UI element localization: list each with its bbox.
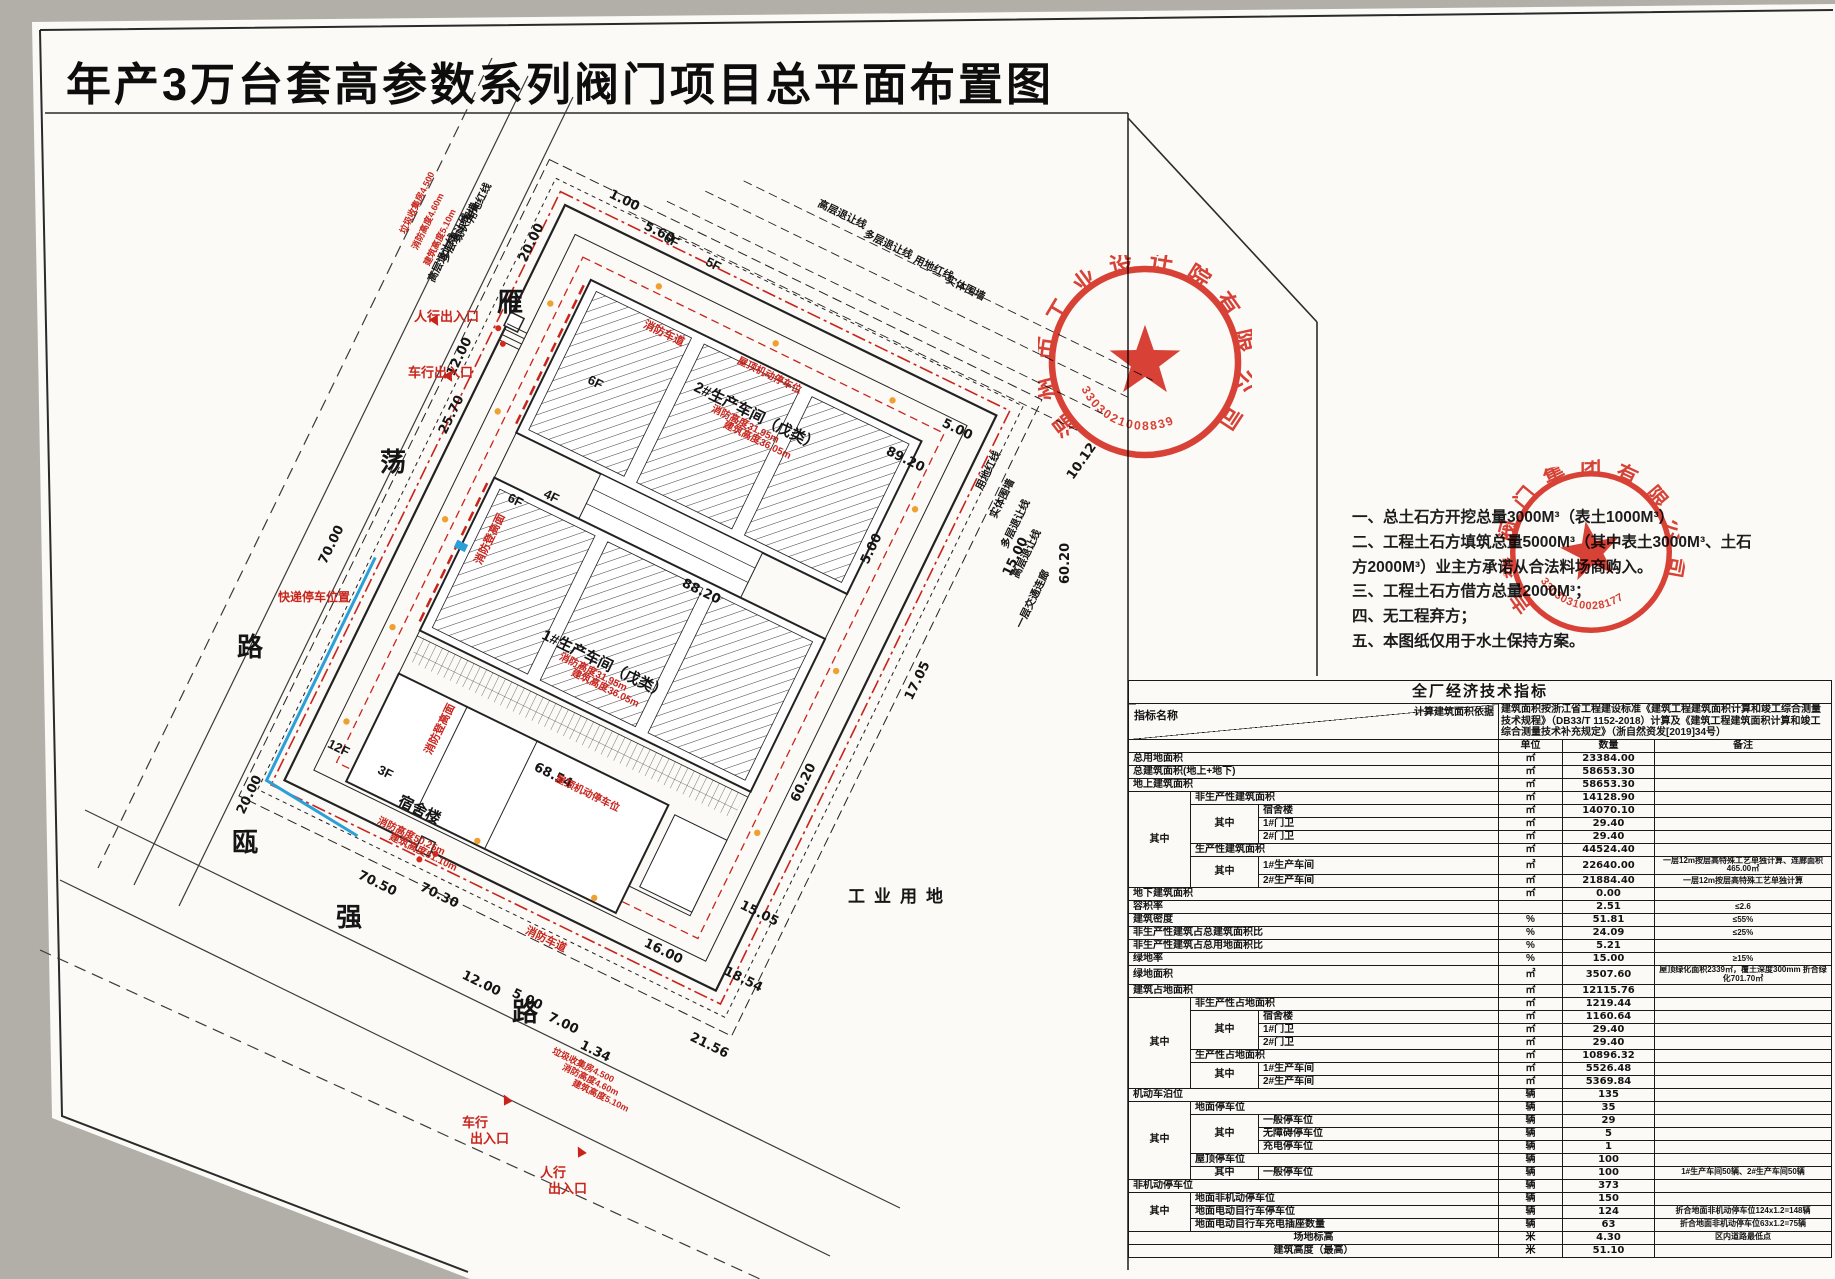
economic-indicators-table: 全厂经济技术指标 计算建筑面积依据 指标名称 建筑面积按浙江省工程建设标准《建筑…	[1128, 680, 1832, 1258]
table-cell	[1655, 1101, 1832, 1114]
table-cell	[1655, 984, 1832, 997]
table-cell: 地面停车位	[1191, 1101, 1499, 1114]
table-row: 其中非生产性建筑面积㎡14128.90	[1129, 791, 1832, 804]
stamp-number: 3303021008839	[1079, 384, 1177, 433]
table-cell: 其中	[1191, 856, 1259, 888]
table-row: 屋顶停车位辆100	[1129, 1153, 1832, 1166]
table-cell: 辆	[1499, 1179, 1563, 1192]
table-cell: 非机动停车位	[1129, 1179, 1499, 1192]
table-cell: 折合地面非机动停车位124x1.2=148辆	[1655, 1205, 1832, 1218]
table-cell: 辆	[1499, 1218, 1563, 1231]
table-cell	[1655, 817, 1832, 830]
valve-company-stamp: 吉泰阀门集团有限公司 33030310028177	[1487, 448, 1696, 657]
table-cell: 其中	[1129, 791, 1191, 888]
table-row: 建筑高度（最高）米51.10	[1129, 1244, 1832, 1257]
table-cell: 29.40	[1563, 830, 1655, 843]
table-row: 其中1#生产车间㎡5526.48	[1129, 1062, 1832, 1075]
table-cell: 非生产性建筑占总建筑面积比	[1129, 927, 1499, 940]
stamp-star	[1110, 325, 1181, 392]
table-cell	[1655, 1036, 1832, 1049]
table-cell: 0.00	[1563, 888, 1655, 901]
table-cell: 非生产性建筑面积	[1191, 791, 1499, 804]
table-cell: 机动车泊位	[1129, 1088, 1499, 1101]
table-row: 其中宿舍楼㎡14070.10	[1129, 804, 1832, 817]
table-cell: 一层12m按层高特殊工艺单独计算	[1655, 875, 1832, 888]
table-cell	[1655, 1023, 1832, 1036]
table-cell: 屋顶停车位	[1191, 1153, 1499, 1166]
table-cell: 辆	[1499, 1205, 1563, 1218]
table-row: 其中非生产性占地面积㎡1219.44	[1129, 997, 1832, 1010]
table-cell: %	[1499, 940, 1563, 953]
table-cell: 米	[1499, 1244, 1563, 1257]
table-cell: 2#门卫	[1259, 1036, 1499, 1049]
table-cell: 58653.30	[1563, 778, 1655, 791]
table-row: 生产性占地面积㎡10896.32	[1129, 1049, 1832, 1062]
table-cell	[1655, 843, 1832, 856]
table-cell: 宿舍楼	[1259, 804, 1499, 817]
table-cell: 无障碍停车位	[1259, 1127, 1499, 1140]
table-cell: 51.81	[1563, 914, 1655, 927]
table-cell: 辆	[1499, 1101, 1563, 1114]
table-cell: 4.30	[1563, 1231, 1655, 1244]
table-cell: 辆	[1499, 1127, 1563, 1140]
table-cell: 100	[1563, 1166, 1655, 1179]
table-cell: ㎡	[1499, 888, 1563, 901]
table-cell: 124	[1563, 1205, 1655, 1218]
table-cell: 折合地面非机动停车位63x1.2=75辆	[1655, 1218, 1832, 1231]
table-cell	[1655, 888, 1832, 901]
table-row: 地上建筑面积㎡58653.30	[1129, 778, 1832, 791]
table-cell: ㎡	[1499, 1075, 1563, 1088]
col-header-qty: 数量	[1563, 739, 1655, 752]
table-cell: 35	[1563, 1101, 1655, 1114]
table-cell: 容积率	[1129, 901, 1499, 914]
table-cell	[1655, 752, 1832, 765]
table-cell: 1219.44	[1563, 997, 1655, 1010]
stamp-star	[1556, 516, 1624, 582]
table-cell: 29.40	[1563, 1023, 1655, 1036]
table-cell	[1655, 1192, 1832, 1205]
table-cell: 建筑高度（最高）	[1129, 1244, 1499, 1257]
table-row: 生产性建筑面积㎡44524.40	[1129, 843, 1832, 856]
table-cell: 5	[1563, 1127, 1655, 1140]
table-cell: ㎡	[1499, 856, 1563, 875]
table-cell: 1#门卫	[1259, 1023, 1499, 1036]
table-cell: 辆	[1499, 1166, 1563, 1179]
table-cell: 辆	[1499, 1114, 1563, 1127]
col-header-remark: 备注	[1655, 739, 1832, 752]
table-cell: ㎡	[1499, 997, 1563, 1010]
table-cell: 地面电动自行车停车位	[1191, 1205, 1499, 1218]
table-cell: %	[1499, 953, 1563, 966]
table-row: 机动车泊位辆135	[1129, 1088, 1832, 1101]
table-row: 绿地面积㎡3507.60屋顶绿化面积2339㎡，覆土深度300mm 折合绿化70…	[1129, 966, 1832, 985]
table-cell: 其中	[1191, 804, 1259, 843]
table-cell: 非生产性占地面积	[1191, 997, 1499, 1010]
table-cell: 其中	[1191, 1010, 1259, 1049]
table-cell: 一层12m按层高特殊工艺单独计算、连廊面积465.00㎡	[1655, 856, 1832, 875]
calc-basis-text: 建筑面积按浙江省工程建设标准《建筑工程建筑面积计算和竣工综合测量技术规程》（DB…	[1499, 704, 1832, 740]
table-cell: 绿地率	[1129, 953, 1499, 966]
table-cell: 58653.30	[1563, 765, 1655, 778]
table-cell: ㎡	[1499, 791, 1563, 804]
table-cell: ㎡	[1499, 1036, 1563, 1049]
table-row: 其中1#生产车间㎡22640.00一层12m按层高特殊工艺单独计算、连廊面积46…	[1129, 856, 1832, 875]
table-cell: 屋顶绿化面积2339㎡，覆土深度300mm 折合绿化701.70㎡	[1655, 966, 1832, 985]
table-cell: ㎡	[1499, 984, 1563, 997]
indicators-tbody: 总用地面积㎡23384.00总建筑面积(地上+地下)㎡58653.30地上建筑面…	[1129, 752, 1832, 1257]
table-cell: 一般停车位	[1259, 1114, 1499, 1127]
table-cell: ㎡	[1499, 1023, 1563, 1036]
table-cell: ≤2.6	[1655, 901, 1832, 914]
table-cell: 1160.64	[1563, 1010, 1655, 1023]
table-cell: 区内道路最低点	[1655, 1231, 1832, 1244]
table-cell	[1655, 791, 1832, 804]
table-cell	[1499, 901, 1563, 914]
table-cell: 100	[1563, 1153, 1655, 1166]
table-row: 非生产性建筑占总用地面积比%5.21	[1129, 940, 1832, 953]
table-cell: 14070.10	[1563, 804, 1655, 817]
table-cell	[1655, 778, 1832, 791]
table-cell: 1#门卫	[1259, 817, 1499, 830]
table-cell: 辆	[1499, 1088, 1563, 1101]
table-cell: 10896.32	[1563, 1049, 1655, 1062]
table-row: 总建筑面积(地上+地下)㎡58653.30	[1129, 765, 1832, 778]
col-header-unit: 单位	[1499, 739, 1563, 752]
table-cell: 生产性占地面积	[1191, 1049, 1499, 1062]
table-cell	[1655, 1010, 1832, 1023]
table-cell: 绿地面积	[1129, 966, 1499, 985]
table-cell: 44524.40	[1563, 843, 1655, 856]
table-row: 容积率2.51≤2.6	[1129, 901, 1832, 914]
table-cell: 2#生产车间	[1259, 875, 1499, 888]
table-cell: 12115.76	[1563, 984, 1655, 997]
table-cell: 21884.40	[1563, 875, 1655, 888]
table-row: 建筑占地面积㎡12115.76	[1129, 984, 1832, 997]
table-cell: ㎡	[1499, 1010, 1563, 1023]
table-cell: 5526.48	[1563, 1062, 1655, 1075]
table-cell: 建筑密度	[1129, 914, 1499, 927]
table-cell: ≤25%	[1655, 927, 1832, 940]
table-cell: 辆	[1499, 1192, 1563, 1205]
table-cell	[1655, 1062, 1832, 1075]
table-cell	[1655, 1179, 1832, 1192]
table-cell: ㎡	[1499, 843, 1563, 856]
table-cell: 辆	[1499, 1140, 1563, 1153]
table-row: 其中一般停车位辆1001#生产车间50辆、2#生产车间50辆	[1129, 1166, 1832, 1179]
header-blank	[1129, 739, 1499, 752]
table-cell: 24.09	[1563, 927, 1655, 940]
table-row: 建筑密度%51.81≤55%	[1129, 914, 1832, 927]
table-cell: 1#生产车间	[1259, 856, 1499, 875]
table-cell	[1655, 830, 1832, 843]
page-title: 年产3万台套高参数系列阀门项目总平面布置图	[66, 48, 1054, 113]
table-cell: ㎡	[1499, 1062, 1563, 1075]
table-cell	[1655, 1114, 1832, 1127]
table-cell: 非生产性建筑占总用地面积比	[1129, 940, 1499, 953]
table-cell: 米	[1499, 1231, 1563, 1244]
table-cell	[1655, 1088, 1832, 1101]
table-corner-cell: 计算建筑面积依据 指标名称	[1129, 704, 1499, 740]
table-cell: 总建筑面积(地上+地下)	[1129, 765, 1499, 778]
table-row: 总用地面积㎡23384.00	[1129, 752, 1832, 765]
table-row: 非生产性建筑占总建筑面积比%24.09≤25%	[1129, 927, 1832, 940]
table-cell: 29.40	[1563, 817, 1655, 830]
table-cell	[1655, 1244, 1832, 1257]
table-cell: ㎡	[1499, 778, 1563, 791]
table-cell: 地下建筑面积	[1129, 888, 1499, 901]
table-cell	[1655, 1075, 1832, 1088]
design-institute-stamp: 温州市工业设计院有限公司 3303021008839	[1038, 255, 1252, 469]
table-cell: ㎡	[1499, 875, 1563, 888]
table-row: 地面电动自行车停车位辆124折合地面非机动停车位124x1.2=148辆	[1129, 1205, 1832, 1218]
svg-text:3303021008839: 3303021008839	[1079, 384, 1177, 433]
corner-bottom-label: 指标名称	[1134, 710, 1178, 723]
table-cell: 其中	[1129, 1101, 1191, 1179]
table-cell: 地上建筑面积	[1129, 778, 1499, 791]
table-cell: 5.21	[1563, 940, 1655, 953]
table-cell: ㎡	[1499, 1049, 1563, 1062]
table-row: 绿地率%15.00≥15%	[1129, 953, 1832, 966]
table-cell: 29.40	[1563, 1036, 1655, 1049]
table-row: 非机动停车位辆373	[1129, 1179, 1832, 1192]
table-cell: 2#生产车间	[1259, 1075, 1499, 1088]
table-cell: 地面电动自行车充电插座数量	[1191, 1218, 1499, 1231]
table-cell: ≥15%	[1655, 953, 1832, 966]
table-cell: 其中	[1129, 997, 1191, 1088]
table-row: 地下建筑面积㎡0.00	[1129, 888, 1832, 901]
table-cell	[1655, 1153, 1832, 1166]
table-cell: 辆	[1499, 1153, 1563, 1166]
table-cell	[1655, 765, 1832, 778]
table-cell	[1655, 1140, 1832, 1153]
table-cell: 其中	[1129, 1192, 1191, 1231]
table-cell: 51.10	[1563, 1244, 1655, 1257]
table-row: 场地标高米4.30区内道路最低点	[1129, 1231, 1832, 1244]
table-cell: 一般停车位	[1259, 1166, 1499, 1179]
table-cell: 其中	[1191, 1166, 1259, 1179]
table-cell: 1#生产车间50辆、2#生产车间50辆	[1655, 1166, 1832, 1179]
table-row: 其中地面非机动停车位辆150	[1129, 1192, 1832, 1205]
table-cell: 总用地面积	[1129, 752, 1499, 765]
table-row: 其中宿舍楼㎡1160.64	[1129, 1010, 1832, 1023]
table-cell: 宿舍楼	[1259, 1010, 1499, 1023]
table-cell: 135	[1563, 1088, 1655, 1101]
table-cell: 373	[1563, 1179, 1655, 1192]
table-cell	[1655, 940, 1832, 953]
table-cell: %	[1499, 914, 1563, 927]
table-cell: 1#生产车间	[1259, 1062, 1499, 1075]
table-cell	[1655, 1127, 1832, 1140]
drawing-sheet: 年产3万台套高参数系列阀门项目总平面布置图 1.005.6020.0012.00…	[0, 0, 1835, 1279]
table-cell: 地面非机动停车位	[1191, 1192, 1499, 1205]
table-cell: 其中	[1191, 1114, 1259, 1153]
table-cell: ≤55%	[1655, 914, 1832, 927]
table-row: 其中地面停车位辆35	[1129, 1101, 1832, 1114]
table-cell: 建筑占地面积	[1129, 984, 1499, 997]
table-cell: 15.00	[1563, 953, 1655, 966]
table-cell: 63	[1563, 1218, 1655, 1231]
table-cell: 3507.60	[1563, 966, 1655, 985]
table-cell	[1655, 1049, 1832, 1062]
table-cell: 1	[1563, 1140, 1655, 1153]
table-cell: ㎡	[1499, 817, 1563, 830]
table-cell: 其中	[1191, 1062, 1259, 1088]
table-cell: 23384.00	[1563, 752, 1655, 765]
table-cell: 14128.90	[1563, 791, 1655, 804]
table-cell: ㎡	[1499, 804, 1563, 817]
table-cell: 充电停车位	[1259, 1140, 1499, 1153]
table-cell: 29	[1563, 1114, 1655, 1127]
table-cell: 22640.00	[1563, 856, 1655, 875]
table-cell	[1655, 804, 1832, 817]
table-cell: 生产性建筑面积	[1191, 843, 1499, 856]
table-cell: 2.51	[1563, 901, 1655, 914]
table-cell: 150	[1563, 1192, 1655, 1205]
table-cell	[1655, 997, 1832, 1010]
table-cell: 场地标高	[1129, 1231, 1499, 1244]
table-cell: ㎡	[1499, 765, 1563, 778]
table-cell: ㎡	[1499, 752, 1563, 765]
table-cell: 2#门卫	[1259, 830, 1499, 843]
table-row: 地面电动自行车充电插座数量辆63折合地面非机动停车位63x1.2=75辆	[1129, 1218, 1832, 1231]
table-cell: ㎡	[1499, 830, 1563, 843]
table-row: 其中一般停车位辆29	[1129, 1114, 1832, 1127]
table-cell: 5369.84	[1563, 1075, 1655, 1088]
table-cell: ㎡	[1499, 966, 1563, 985]
table-title: 全厂经济技术指标	[1129, 681, 1832, 704]
corner-top-label: 计算建筑面积依据	[1414, 707, 1494, 719]
table-cell: %	[1499, 927, 1563, 940]
